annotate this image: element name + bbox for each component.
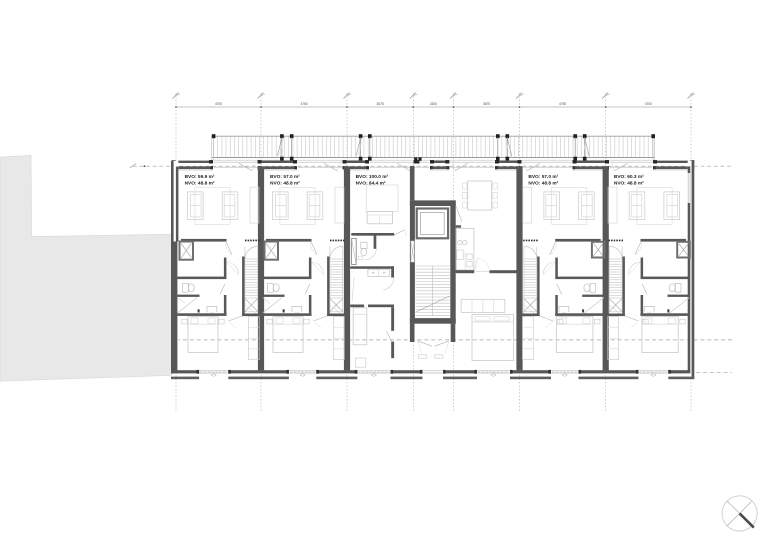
svg-text:BVO: 100.0 m²: BVO: 100.0 m² [356, 174, 389, 180]
svg-text:BVO: 57.0 m²: BVO: 57.0 m² [528, 174, 558, 180]
svg-text:NVO: 48.8 m²: NVO: 48.8 m² [270, 181, 300, 187]
svg-text:NVO: 48.8 m²: NVO: 48.8 m² [528, 181, 558, 187]
svg-text:3675: 3675 [483, 102, 490, 106]
svg-text:NVO: 48.8 m²: NVO: 48.8 m² [185, 181, 215, 187]
svg-text:NVO: 48.8 m²: NVO: 48.8 m² [614, 181, 644, 187]
svg-text:4700: 4700 [215, 102, 222, 106]
svg-text:4700: 4700 [645, 102, 652, 106]
svg-text:BVO: 57.0 m²: BVO: 57.0 m² [270, 174, 300, 180]
svg-text:BVO: 60.3 m²: BVO: 60.3 m² [614, 174, 644, 180]
svg-text:NVO: 84.4 m²: NVO: 84.4 m² [356, 181, 386, 187]
svg-text:2200: 2200 [430, 102, 437, 106]
svg-text:4750: 4750 [300, 102, 307, 106]
svg-text:4750: 4750 [559, 102, 566, 106]
svg-text:3675: 3675 [377, 102, 384, 106]
svg-text:BVO: 59.9 m²: BVO: 59.9 m² [185, 174, 215, 180]
